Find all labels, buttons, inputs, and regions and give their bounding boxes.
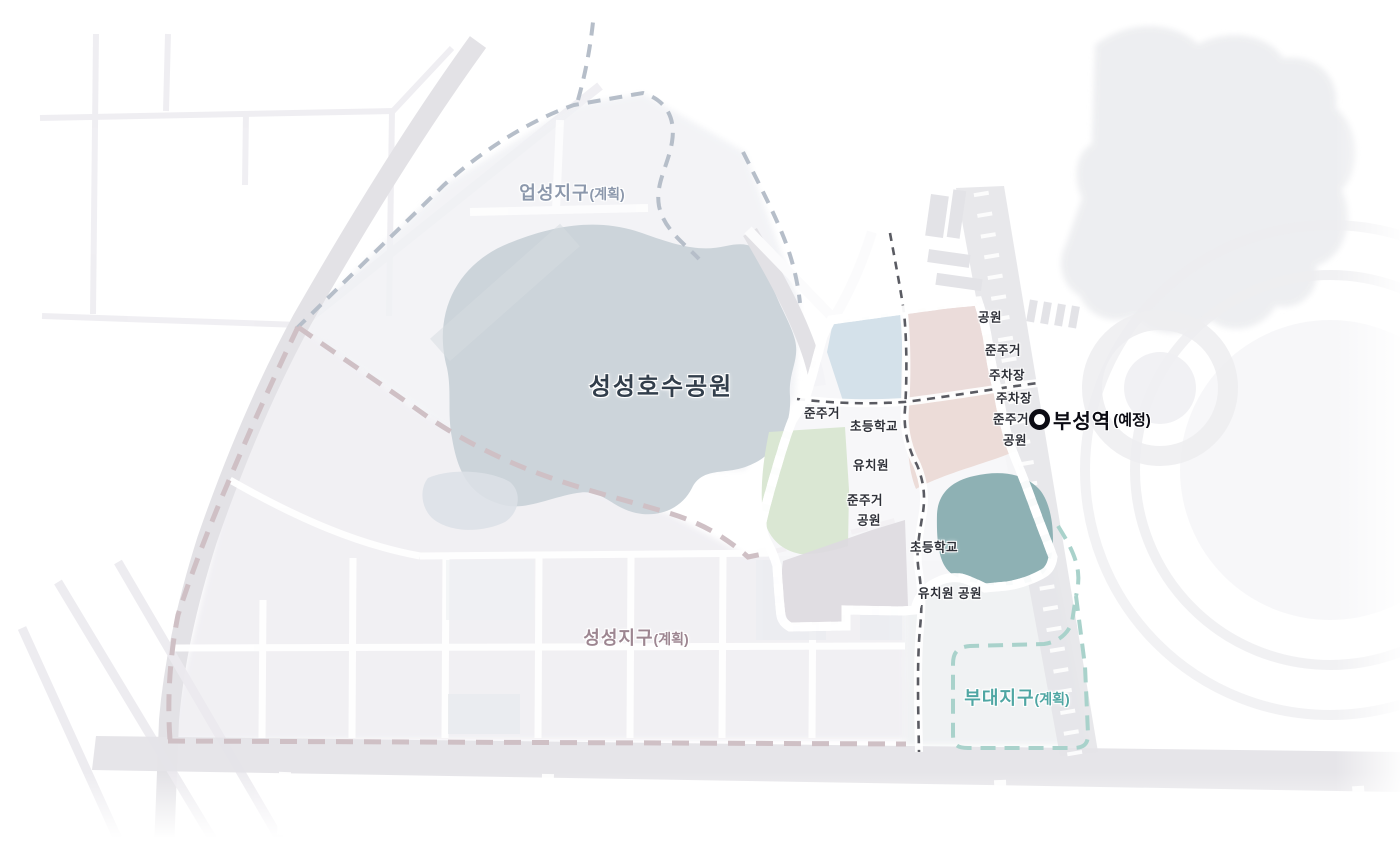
white-road: [834, 232, 872, 318]
northeast-terrain-blob: [1061, 26, 1355, 333]
zone-green-park: [762, 427, 849, 554]
city-plan-map: 업성지구(계획)성성호수공원성성지구(계획)부대지구(계획) 준주거초등학교유치…: [0, 0, 1400, 850]
map-canvas: [0, 0, 1400, 850]
zone-teal-park: [937, 473, 1053, 585]
roundabout: [1124, 352, 1196, 424]
wetland-shape: [422, 472, 517, 530]
bottom-fade: [0, 772, 1400, 850]
lake-shape: [443, 225, 796, 515]
right-fade: [1335, 0, 1400, 850]
